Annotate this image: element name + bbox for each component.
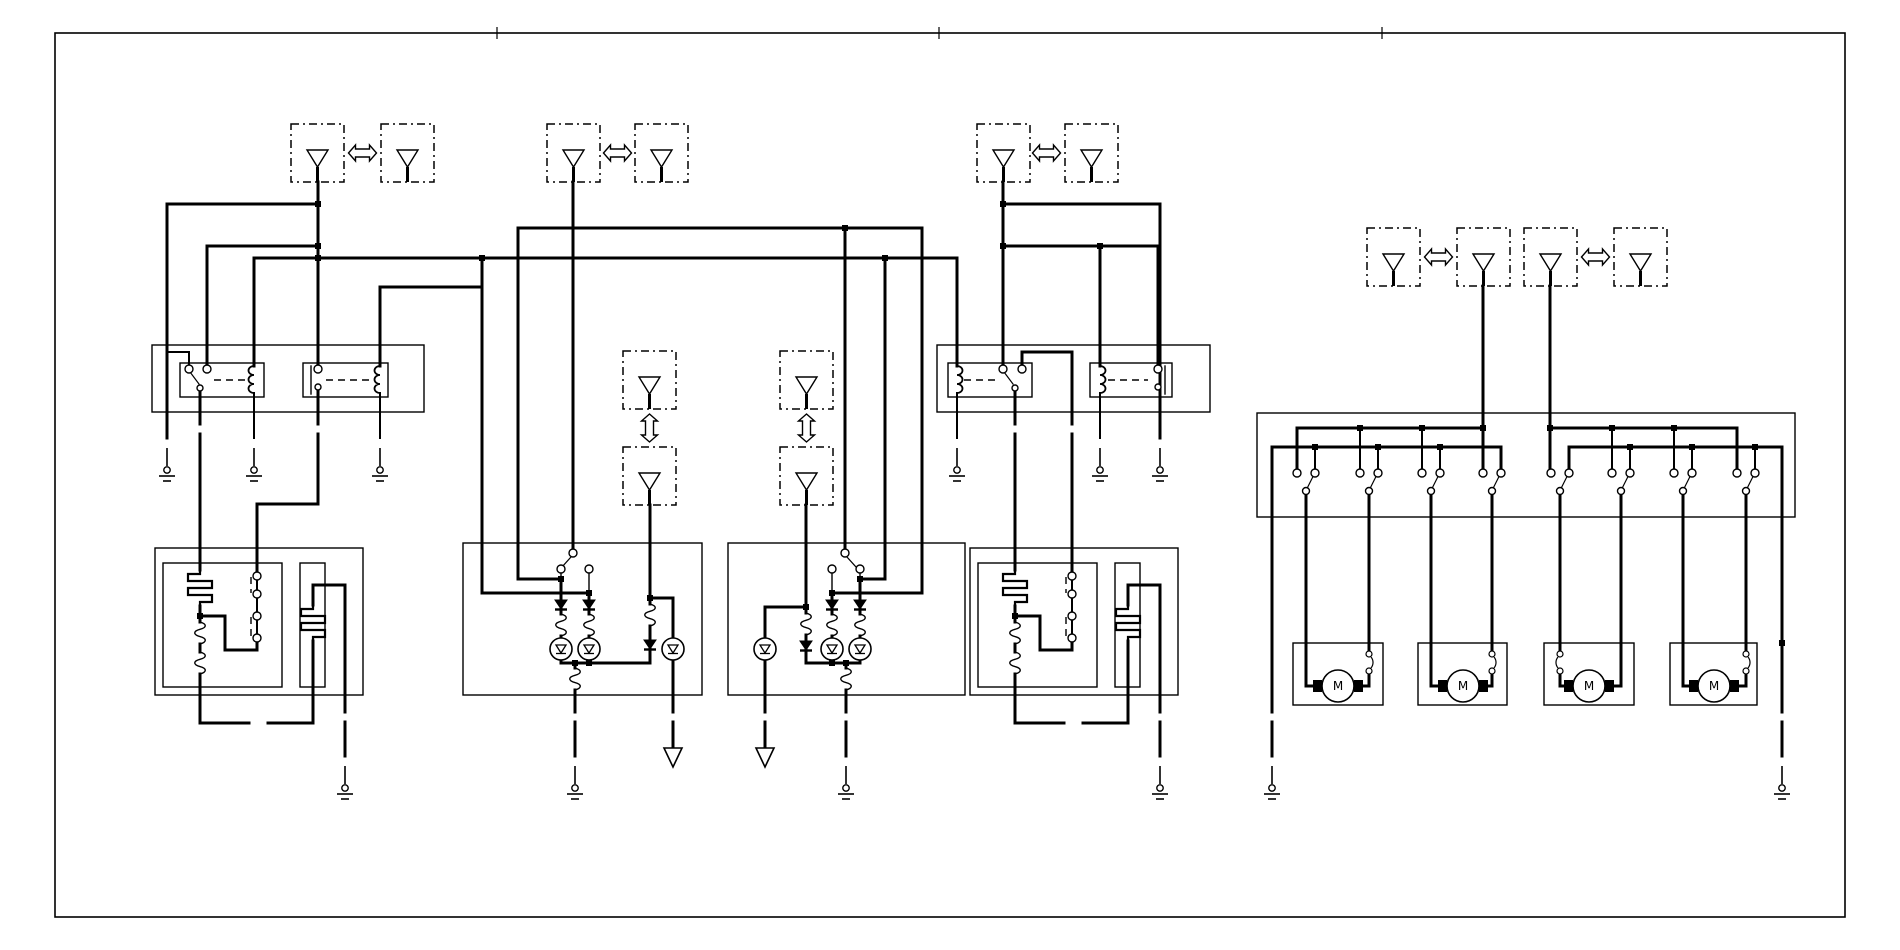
inline-connector-icon-1 (1556, 651, 1563, 674)
indicator-lamp-1 (550, 638, 572, 660)
connector-symbol-c-left (977, 124, 1030, 182)
connector-symbol-b-left (547, 124, 600, 182)
terminal-pin-20 (1068, 634, 1076, 642)
wire-14 (1003, 246, 1158, 365)
wires-layer (167, 182, 1782, 756)
junction-dot-25 (1312, 444, 1318, 450)
wire-129 (1004, 372, 1013, 384)
connector-symbol-e-left (1524, 228, 1577, 286)
motor-3: M (1564, 670, 1614, 702)
junction-dot-33 (1752, 444, 1758, 450)
motor-label: M (1709, 679, 1719, 693)
harness-arrow-icon-1 (349, 145, 377, 161)
wire-80 (200, 616, 257, 650)
wire-9 (518, 228, 922, 543)
terminal-pin-13 (253, 572, 261, 580)
terminal-pin-7 (569, 549, 577, 557)
symbols-layer: MMMM (159, 124, 1790, 799)
connector-symbol-a-left (291, 124, 344, 182)
ground-icon-12 (1774, 766, 1790, 799)
ground-icon-5 (1092, 448, 1108, 481)
relay-coil-1 (249, 366, 255, 393)
wire-54 (860, 258, 885, 579)
relay-coil-2 (1100, 366, 1106, 393)
switch-contact-set-5 (1547, 469, 1573, 499)
wire-88 (1015, 674, 1064, 723)
junction-dot-6 (842, 225, 848, 231)
motor-label: M (1458, 679, 1468, 693)
junction-dot-10 (197, 613, 203, 619)
junction-dot-12 (558, 576, 564, 582)
junction-dot-14 (647, 595, 653, 601)
ground-icon-11 (1264, 766, 1280, 799)
junction-dot-31 (1627, 444, 1633, 450)
junction-dot-18 (857, 576, 863, 582)
switch-contact-set-2 (1356, 469, 1382, 499)
wire-122 (1613, 495, 1621, 686)
schematic-page: MMMM (0, 0, 1900, 950)
connector-symbol-b-right (635, 124, 688, 182)
right-actuator-box (970, 548, 1178, 695)
connector-symbol-d-right (1457, 228, 1510, 286)
wire-117 (1431, 495, 1439, 686)
wire-69 (765, 607, 806, 638)
inline-connector-icon-3 (1743, 651, 1750, 674)
junction-dot-23 (1419, 425, 1425, 431)
wire-45 (650, 598, 673, 638)
wire-89 (1083, 641, 1128, 723)
wire-30 (518, 543, 561, 579)
ground-icon-7 (337, 766, 353, 799)
terminal-pin-18 (1068, 590, 1076, 598)
motor-1: M (1313, 670, 1363, 702)
terminal-pin-5 (1018, 365, 1026, 373)
wiring-diagram: MMMM (0, 0, 1900, 950)
resistor-2 (195, 652, 206, 674)
indicator-lamp-3 (662, 638, 684, 660)
wire-94 (1128, 585, 1160, 712)
motor-label: M (1333, 679, 1343, 693)
wire-123 (1683, 495, 1690, 686)
switch-contact-set-4 (1479, 469, 1505, 499)
left-actuator-inner-box (163, 563, 282, 687)
junction-dot-19 (829, 590, 835, 596)
resistor-1 (195, 622, 206, 644)
ground-icon-3 (372, 448, 388, 481)
junction-dot-4 (479, 255, 485, 261)
connector-symbol-a-right (381, 124, 434, 182)
harness-arrow-icon-1 (642, 414, 658, 442)
terminal-pin-15 (253, 612, 261, 620)
triangle-connector-icon-1 (664, 748, 682, 767)
harness-arrow-icon-2 (604, 145, 632, 161)
resistor-12 (841, 668, 852, 690)
terminal-pin-17 (1068, 572, 1076, 580)
connector-symbol-d-left (1367, 228, 1420, 286)
resistor-7 (645, 604, 656, 626)
ground-icon-6 (1152, 448, 1168, 481)
ground-icon-8 (567, 766, 583, 799)
junction-dot-30 (1671, 425, 1677, 431)
terminal-pin-11 (828, 565, 836, 573)
junction-dot-8 (1000, 243, 1006, 249)
diode-3 (644, 640, 656, 650)
resistor-11 (855, 614, 866, 636)
resistor-6 (584, 614, 595, 636)
junction-dot-24 (1480, 425, 1486, 431)
resistor-5 (556, 614, 567, 636)
harness-arrow-icon-2 (799, 414, 815, 442)
resistor-4 (1010, 652, 1021, 674)
diode-6 (854, 600, 866, 610)
junction-dot-20 (829, 660, 835, 666)
switch-contact-set-1 (1293, 469, 1319, 499)
resistor-9 (801, 613, 812, 635)
junction-dot-27 (1437, 444, 1443, 450)
junction-dot-5 (882, 255, 888, 261)
resistor-8 (570, 668, 581, 690)
contact-1 (197, 385, 203, 391)
indicator-lamp-2 (578, 638, 600, 660)
motor-4: M (1689, 670, 1739, 702)
terminal-pin-19 (1068, 612, 1076, 620)
page-border (55, 33, 1845, 917)
junction-dot-28 (1547, 425, 1553, 431)
inline-connector-icon-2 (1489, 651, 1496, 674)
contact-3 (1012, 385, 1018, 391)
wire-125 (1738, 675, 1746, 686)
junction-dot-16 (586, 660, 592, 666)
wire-13 (1003, 204, 1160, 438)
wire-90 (1015, 616, 1072, 650)
left-relay-assembly-box (152, 345, 424, 412)
wire-116 (1362, 675, 1369, 686)
junction-dot-29 (1609, 425, 1615, 431)
connector-symbol-v2-top (780, 351, 833, 409)
junction-dot-32 (1689, 444, 1695, 450)
element-2 (301, 605, 325, 641)
wire-84 (313, 585, 345, 712)
terminal-pin-14 (253, 590, 261, 598)
connector-symbol-v1-bottom (623, 447, 676, 505)
harness-arrow-icon-5 (1582, 249, 1610, 265)
junction-dot-9 (1097, 243, 1103, 249)
diode-5 (826, 600, 838, 610)
junction-dot-1 (315, 201, 321, 207)
terminal-pin-8 (557, 565, 565, 573)
terminal-pin-4 (999, 365, 1007, 373)
left-actuator-box (155, 548, 363, 695)
wire-114 (1306, 495, 1314, 686)
junction-dot-22 (1357, 425, 1363, 431)
connector-symbol-v2-bottom (780, 447, 833, 505)
triangle-connector-icon-2 (756, 748, 774, 767)
ground-icon-9 (838, 766, 854, 799)
terminal-pin-6 (1154, 365, 1162, 373)
element-4 (1116, 605, 1140, 641)
terminal-pin-9 (585, 565, 593, 573)
junction-dot-2 (315, 243, 321, 249)
switch-contact-set-8 (1733, 469, 1759, 499)
indicator-box-1 (463, 543, 702, 695)
terminal-pin-1 (185, 365, 193, 373)
junction-dot-15 (572, 660, 578, 666)
contact-2 (315, 384, 321, 390)
connector-symbol-e-right (1614, 228, 1667, 286)
terminal-pin-12 (856, 565, 864, 573)
indicator-lamp-5 (821, 638, 843, 660)
junction-dot-11 (1012, 613, 1018, 619)
ground-icon-2 (246, 448, 262, 481)
wire-7 (380, 287, 482, 366)
switch-contact-set-7 (1670, 469, 1696, 499)
switch-contact-set-3 (1418, 469, 1444, 499)
wire-107 (1569, 447, 1782, 712)
terminal-pin-16 (253, 634, 261, 642)
harness-arrow-icon-3 (1033, 145, 1061, 161)
inline-connector-icon-1 (1366, 651, 1373, 674)
terminal-pin-10 (841, 549, 849, 557)
junction-dot-21 (843, 660, 849, 666)
resistor-3 (1010, 622, 1021, 644)
relay-coil-2 (375, 366, 381, 393)
element-3 (1003, 570, 1027, 606)
resistor-10 (827, 614, 838, 636)
diode-1 (555, 600, 567, 610)
indicator-lamp-4 (754, 638, 776, 660)
page-border-layer (55, 27, 1845, 917)
wire-79 (268, 641, 313, 723)
right-actuator-inner-box (978, 563, 1097, 687)
junction-dot-13 (586, 590, 592, 596)
diode-4 (800, 641, 812, 651)
terminal-pin-2 (203, 365, 211, 373)
junction-dot-26 (1375, 444, 1381, 450)
wire-5 (207, 246, 318, 365)
motor-label: M (1584, 679, 1594, 693)
connector-symbol-v1-top (623, 351, 676, 409)
indicator-lamp-6 (849, 638, 871, 660)
motor-2: M (1438, 670, 1488, 702)
relay-coil-1 (957, 366, 963, 393)
wire-23 (257, 434, 318, 572)
switch-contact-set-6 (1608, 469, 1634, 499)
harness-arrow-icon-4 (1425, 249, 1453, 265)
ground-icon-4 (949, 448, 965, 481)
junction-dot-7 (1000, 201, 1006, 207)
junction-dot-34 (1779, 640, 1785, 646)
diode-2 (583, 600, 595, 610)
terminal-pin-3 (314, 365, 322, 373)
junction-dot-17 (803, 604, 809, 610)
element-1 (188, 570, 212, 606)
connector-symbol-c-right (1065, 124, 1118, 182)
wire-78 (200, 674, 249, 723)
ground-icon-10 (1152, 766, 1168, 799)
ground-icon-1 (159, 448, 175, 481)
wire-6 (254, 258, 957, 366)
wire-128 (190, 372, 199, 384)
wire-53 (847, 557, 856, 567)
junction-dot-3 (315, 255, 321, 261)
contact-4 (1155, 384, 1161, 390)
